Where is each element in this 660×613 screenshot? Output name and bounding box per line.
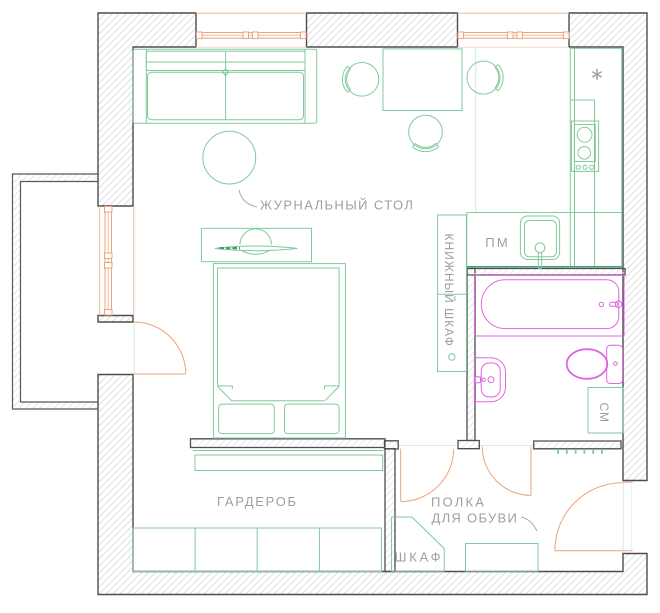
svg-text:ЖУРНАЛЬНЫЙ СТОЛ: ЖУРНАЛЬНЫЙ СТОЛ [260, 198, 414, 213]
svg-text:ДЛЯ ОБУВИ: ДЛЯ ОБУВИ [432, 510, 519, 525]
svg-text:ПОЛКА: ПОЛКА [431, 494, 486, 509]
svg-text:КНИЖНЫЙ ШКАФ: КНИЖНЫЙ ШКАФ [442, 234, 457, 347]
svg-text:ШКАФ: ШКАФ [395, 550, 444, 565]
svg-text:ГАРДЕРОБ: ГАРДЕРОБ [217, 494, 298, 509]
svg-text:СМ: СМ [597, 403, 611, 424]
svg-text:ПМ: ПМ [485, 235, 510, 250]
